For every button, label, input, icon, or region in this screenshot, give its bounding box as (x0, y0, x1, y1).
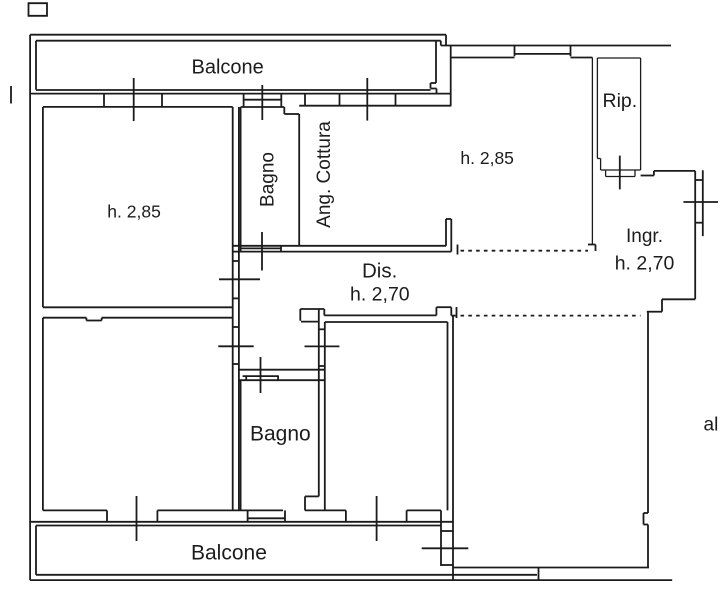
svg-text:al: al (704, 415, 719, 436)
svg-text:h. 2,70: h. 2,70 (350, 284, 410, 306)
svg-text:Dis.: Dis. (362, 259, 397, 282)
svg-text:h. 2,70: h. 2,70 (615, 253, 675, 275)
svg-text:Bagno: Bagno (250, 423, 311, 446)
svg-text:Ang. Cottura: Ang. Cottura (314, 121, 335, 228)
svg-text:h. 2,85: h. 2,85 (460, 148, 514, 168)
svg-text:Balcone: Balcone (192, 57, 264, 79)
svg-text:Ingr.: Ingr. (626, 226, 663, 247)
svg-text:h. 2,85: h. 2,85 (107, 201, 161, 221)
svg-text:Balcone: Balcone (191, 542, 267, 565)
svg-text:Bagno: Bagno (258, 152, 279, 207)
svg-text:Rip.: Rip. (603, 90, 638, 112)
